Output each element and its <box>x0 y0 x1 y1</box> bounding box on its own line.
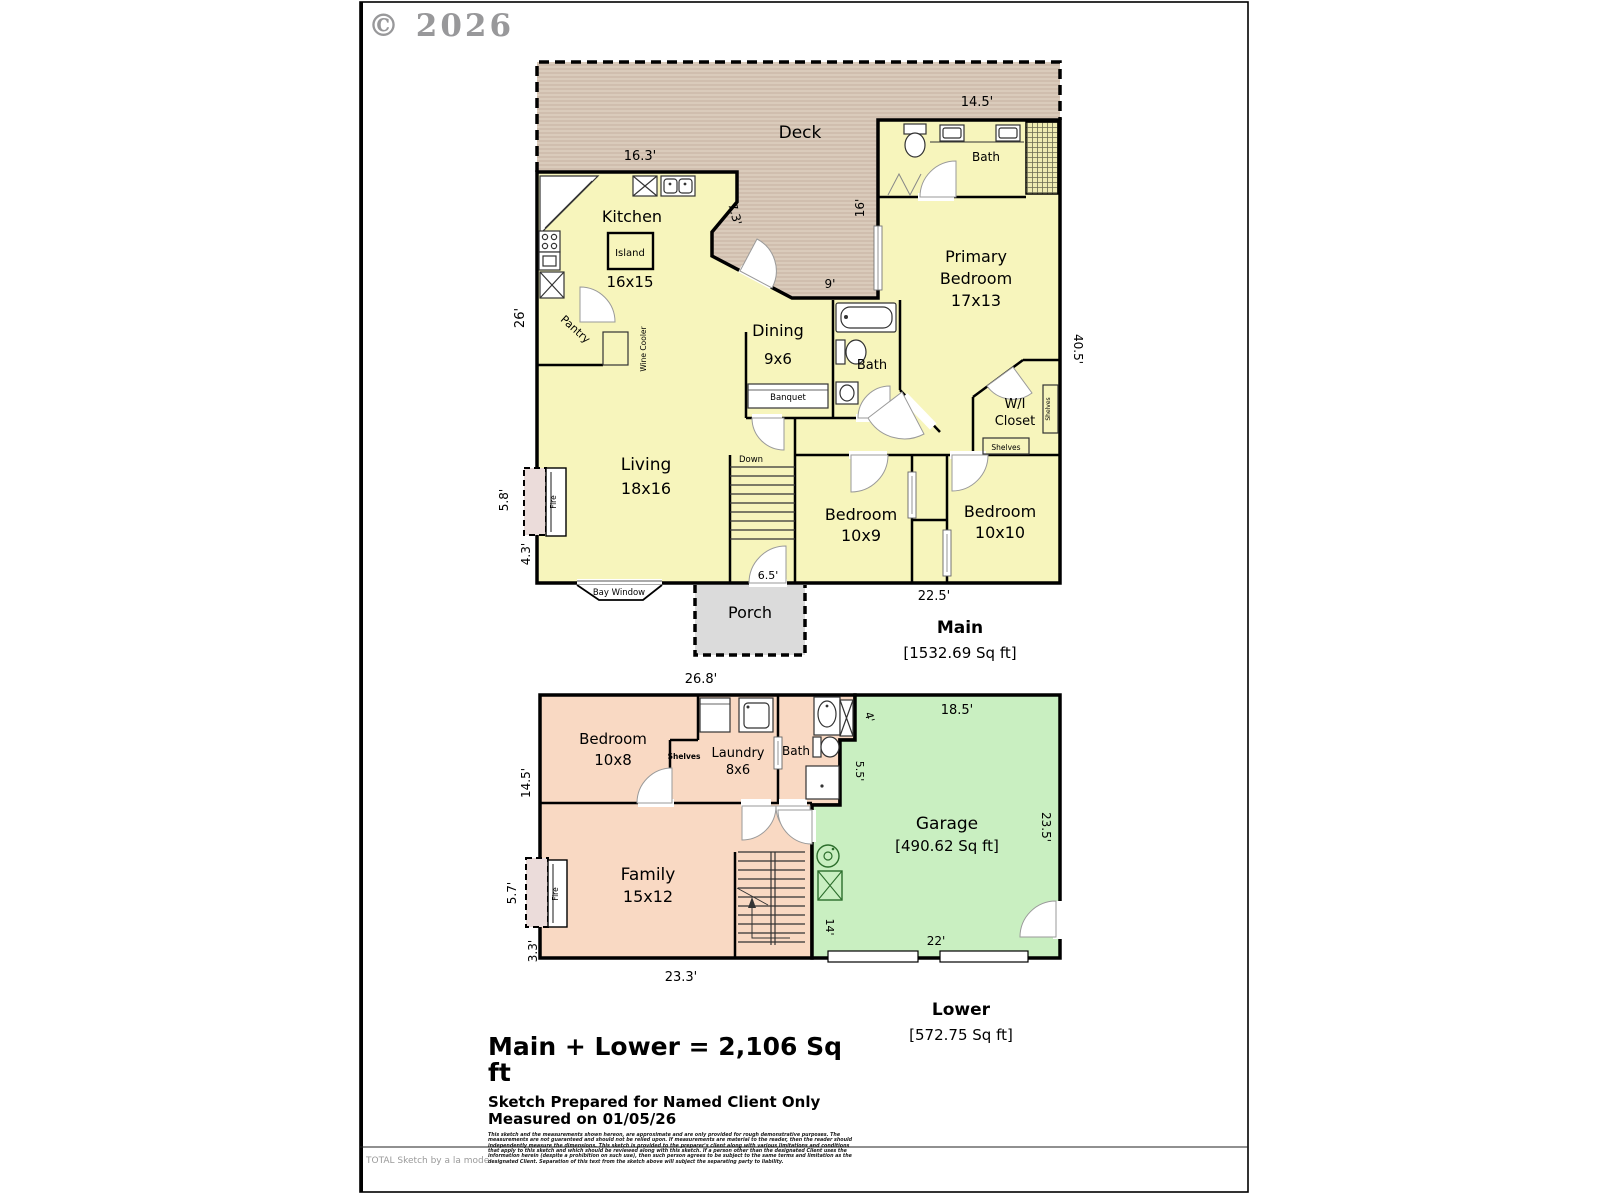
sink-icon <box>836 382 858 404</box>
dryer-icon <box>700 698 730 732</box>
room-label-kitchen: Kitchen <box>602 207 662 226</box>
shelves-label: Shelves <box>1045 397 1052 420</box>
dim-label: 26' <box>513 308 528 328</box>
stove-icon <box>539 231 560 270</box>
floorplan-page: © 2026 <box>0 0 1600 1200</box>
room-label-porch: Porch <box>728 603 772 622</box>
total-sqft: Main + Lower = 2,106 Sq ft <box>488 1034 868 1087</box>
dim-label: 5.8' <box>497 489 511 511</box>
main-floor: Deck 14.5' Bath 16.3' Kitchen Island 16x… <box>497 62 1085 662</box>
bathtub-icon <box>836 303 896 332</box>
room-label-family: Family <box>621 865 676 885</box>
dim-label: 14.5' <box>519 768 533 798</box>
shelves-label: Shelves <box>991 443 1020 452</box>
room-label-laundry: Laundry <box>712 746 765 761</box>
summary-block: Main + Lower = 2,106 Sq ft Sketch Prepar… <box>488 1034 868 1165</box>
shower-icon <box>806 766 839 799</box>
sink-icon <box>814 697 840 735</box>
room-label-deck: Deck <box>779 123 822 143</box>
room-size-kitchen: 16x15 <box>606 273 653 291</box>
linen-icon <box>840 700 853 736</box>
dim-label: 23.5' <box>1039 812 1053 842</box>
dim-label: 14' <box>823 918 836 935</box>
fireplace-main <box>524 468 566 536</box>
banquet-label: Banquet <box>770 393 806 403</box>
dim-label: 9' <box>825 277 836 291</box>
dim-label: 4.3' <box>519 543 533 565</box>
fireplace-label: Fire <box>551 887 560 901</box>
garage-door <box>940 951 1028 962</box>
washer-icon <box>739 698 773 732</box>
room-label-garage: Garage <box>916 814 978 834</box>
dim-label: 26.8' <box>685 672 718 687</box>
dim-label: 23.3' <box>665 970 698 985</box>
room-label-living: Living <box>621 455 672 475</box>
floorplan-drawing: © 2026 <box>0 0 1600 1200</box>
room-size-laundry: 8x6 <box>726 763 750 778</box>
toilet-icon <box>904 124 926 157</box>
measured-on: Measured on 01/05/26 <box>488 1111 868 1128</box>
room-label-bath-mid: Bath <box>857 358 887 373</box>
room-size-bedroom2: 10x10 <box>975 523 1025 542</box>
garage-door <box>828 951 918 962</box>
disclaimer: This sketch and the measurements shown h… <box>488 1133 860 1165</box>
stairs-down-label: Down <box>739 455 763 465</box>
dim-label: 40.5' <box>1071 334 1085 364</box>
linen-closet-hatch <box>1026 122 1058 194</box>
dim-label: 5.5' <box>853 761 866 782</box>
dim-label: 16.3' <box>624 149 657 164</box>
dim-label: 22' <box>927 934 946 948</box>
dim-label: 6.5' <box>758 569 779 582</box>
refrigerator-icon <box>540 272 564 298</box>
room-label-bath-top: Bath <box>972 150 1000 164</box>
room-size-dining: 9x6 <box>764 350 792 368</box>
room-label-bedroom1: Bedroom <box>825 505 897 524</box>
wine-cooler-label: Wine Cooler <box>639 325 648 371</box>
island-label: Island <box>615 248 645 259</box>
room-label-primary: Primary <box>945 247 1007 266</box>
pocket-door <box>774 737 782 769</box>
window <box>874 226 882 290</box>
floor-area-main: [1532.69 Sq ft] <box>903 644 1016 662</box>
floor-title-main: Main <box>937 618 983 638</box>
dim-label: 3.3' <box>526 940 540 962</box>
floor-title-lower: Lower <box>932 1000 991 1020</box>
room-label-bedroom2: Bedroom <box>964 502 1036 521</box>
fireplace-label: Fire <box>549 495 558 509</box>
room-label-dining: Dining <box>752 321 804 340</box>
copyright-watermark: © 2026 <box>368 8 514 44</box>
dim-label: 5.7' <box>505 882 519 904</box>
wic-label2: Closet <box>995 414 1036 429</box>
room-label-bath: Bath <box>782 744 810 758</box>
floor-area-lower: [572.75 Sq ft] <box>909 1026 1013 1044</box>
toilet-icon <box>813 737 839 757</box>
prepared-for: Sketch Prepared for Named Client Only <box>488 1094 868 1111</box>
shelves-label: Shelves <box>668 752 701 761</box>
fireplace-lower <box>526 858 567 927</box>
bay-window-label: Bay Window <box>593 588 645 598</box>
dim-label: 16' <box>853 199 867 218</box>
room-size-living: 18x16 <box>621 479 671 498</box>
room-size-family: 15x12 <box>623 887 673 906</box>
room-label-primary2: Bedroom <box>940 269 1012 288</box>
room-size-bedroom: 10x8 <box>594 751 632 769</box>
room-size-primary: 17x13 <box>951 291 1001 310</box>
room-size-bedroom1: 10x9 <box>841 526 881 545</box>
garage-area-label: [490.62 Sq ft] <box>895 837 999 855</box>
dim-label: 22.5' <box>918 589 951 604</box>
dim-label: 14.5' <box>961 95 994 110</box>
wic-label: W/I <box>1004 397 1025 412</box>
room-label-bedroom: Bedroom <box>579 730 647 748</box>
dim-label: 18.5' <box>941 703 974 718</box>
footer-brand: TOTAL Sketch by a la mode <box>365 1156 490 1166</box>
